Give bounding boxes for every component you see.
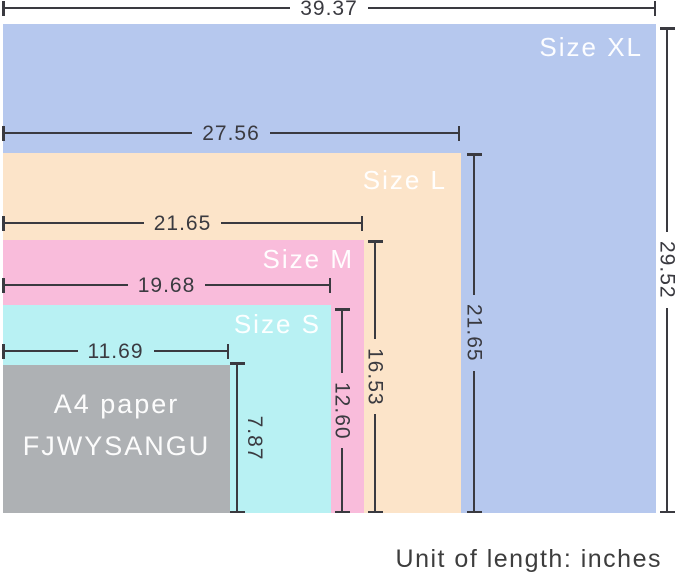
dim-line-segment [341,311,344,373]
dim-value-m-height: 16.53 [365,339,386,415]
dim-line-segment [5,284,128,287]
dim-value-s-width: 19.68 [128,275,206,296]
dim-line-segment [5,222,144,225]
unit-of-length-note: Unit of length: inches [396,545,662,574]
dim-line-segment [205,284,328,287]
dim-tick [654,1,657,16]
dim-value-m-width: 21.65 [144,213,222,234]
a4-brand-label: FJWYSANGU [23,426,211,468]
dim-width-a4: 11.69 [2,343,229,359]
dim-tick [329,278,332,293]
dim-line-segment [221,222,360,225]
size-m-label: Size M [263,246,354,272]
dim-value-l-width: 27.56 [192,123,270,144]
dim-line-segment [5,350,78,353]
dim-tick [335,511,350,514]
dim-width-size-l: 27.56 [2,125,460,141]
dim-tick [230,511,245,514]
dim-value-xl-height: 29.52 [657,232,678,308]
size-l-label: Size L [363,167,447,193]
dim-width-size-m: 21.65 [2,215,363,231]
dim-line-segment [374,414,377,510]
dim-value-a4-width: 11.69 [78,341,154,362]
dim-line-segment [5,7,291,10]
dim-line-segment [473,156,476,296]
dim-width-size-s: 19.68 [2,277,331,293]
dim-tick [660,511,675,514]
dim-value-s-height: 12.60 [332,373,353,449]
dim-width-size-xl: 39.37 [2,0,656,16]
dim-tick [227,344,230,359]
rect-a4-paper: A4 paper FJWYSANGU [3,365,230,513]
dim-line-segment [270,132,458,135]
dim-line-segment [666,308,669,511]
dim-tick [467,511,482,514]
dim-line-segment [154,350,227,353]
dim-line-segment [368,7,654,10]
dim-height-size-s: 12.60 [334,308,350,513]
dim-height-size-xl: 29.52 [659,27,675,513]
a4-paper-label: A4 paper [54,384,180,426]
dim-tick [368,511,383,514]
dim-height-size-l: 21.65 [466,153,482,513]
dim-line-segment [374,243,377,339]
dim-line-segment [473,371,476,511]
size-comparison-diagram: Size XL Size L Size M Size S A4 paper FJ… [0,0,679,584]
dim-height-a4: 7.87 [229,362,245,513]
dim-tick [458,126,461,141]
dim-tick [361,216,364,231]
dim-value-a4-height: 7.87 [244,415,265,460]
dim-line-segment [236,365,239,511]
size-xl-label: Size XL [539,34,643,60]
dim-line-segment [666,30,669,233]
dim-line-segment [341,448,344,510]
dim-line-segment [5,132,193,135]
size-s-label: Size S [234,311,321,337]
dim-height-size-m: 16.53 [367,240,383,513]
dim-value-l-height: 21.65 [464,295,485,371]
dim-value-xl-width: 39.37 [290,0,368,19]
